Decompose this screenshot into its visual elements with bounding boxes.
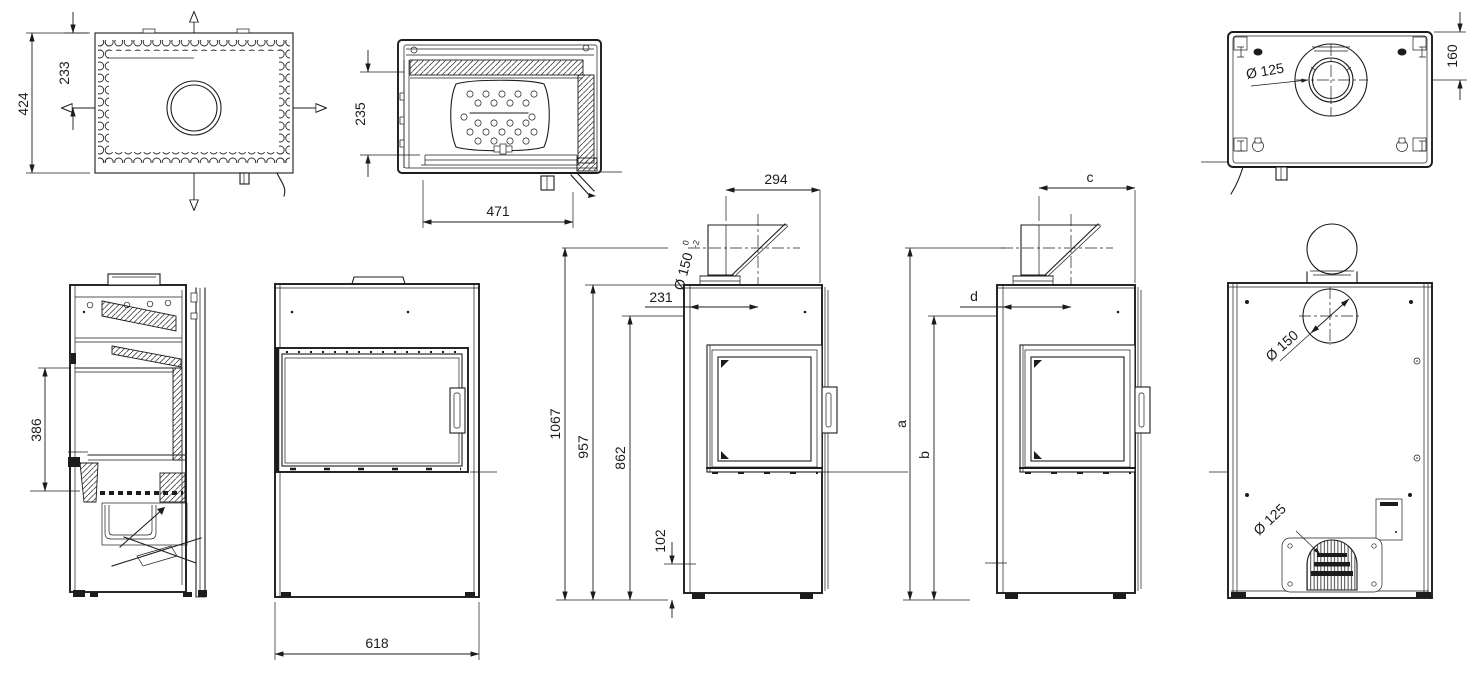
gasket-border-left — [98, 42, 109, 163]
grille-slot-2 — [1314, 562, 1350, 567]
view-side-lettered: c d a b — [893, 169, 1150, 600]
dim-b-label: b — [916, 451, 932, 459]
section-body-outline — [70, 285, 186, 592]
bottom-tab — [1276, 167, 1287, 180]
gasket-border-right — [279, 42, 290, 163]
side-foot-rear — [800, 593, 813, 599]
rear-screw-2 — [1409, 300, 1413, 304]
foot-3 — [183, 592, 192, 597]
door-front — [276, 348, 468, 472]
side-insulation-strip — [578, 75, 594, 163]
flue-pipe-cut-line-b — [1045, 224, 1098, 275]
gasket-border-bottom — [100, 152, 288, 163]
side-foot-front-b — [1005, 593, 1018, 599]
flue-pipe-cut-line — [732, 224, 785, 275]
heat-shield-lines — [196, 288, 205, 597]
dim-flue-offset-label: 233 — [56, 61, 72, 85]
fastener-top-left — [1254, 49, 1263, 56]
technical-drawing-page: 424 233 — [0, 0, 1483, 675]
dim-d-label: d — [970, 288, 978, 304]
door-seal-bottom — [68, 457, 80, 467]
grille-slot-1 — [1317, 553, 1347, 557]
view-side-cross-section: 386 — [28, 274, 207, 597]
top-notch-right — [237, 29, 249, 33]
rating-plate-text-bar — [1380, 502, 1398, 506]
small-dot — [83, 311, 85, 313]
rear-screw-4 — [1408, 493, 1412, 497]
dim-overall-width-label: 618 — [365, 635, 389, 651]
dim-a-label: a — [893, 420, 909, 428]
hinge-corner-block — [577, 158, 597, 171]
side-door-handle-b — [1135, 387, 1150, 433]
view-top-plan: 424 233 — [15, 12, 326, 210]
flue-collar-lines-b — [1013, 276, 1053, 285]
flue-pipe-outline — [708, 225, 787, 275]
flue-dia-tol-lower: -2 — [690, 239, 702, 249]
stove-technical-drawing-canvas: 424 233 — [0, 0, 1483, 675]
keyhole-stem-left — [1255, 138, 1261, 143]
flue-pipe-rear — [1307, 224, 1357, 274]
dim-height-flue-center-label: 1067 — [547, 408, 563, 439]
door-seal-top — [71, 353, 76, 364]
flue-pipe-outline-b — [1021, 225, 1100, 275]
ext-lines-294 — [726, 190, 820, 283]
dim-height-rear-outlet-label: 862 — [612, 446, 628, 470]
view-firebox-horizontal-section: 235 471 — [352, 40, 622, 228]
wall-nub-2 — [400, 117, 404, 124]
fastener-top-right — [1398, 49, 1407, 56]
rear-screw-3 — [1245, 493, 1249, 497]
rear-keyhole-2-dot — [1416, 457, 1418, 459]
dim-firebox-width-label: 471 — [486, 203, 510, 219]
front-foot-right — [465, 592, 475, 597]
view-side-dimensioned: 294 Ø 150 0 -2 231 1067 957 862 102 — [547, 171, 908, 618]
wall-nub-3 — [400, 140, 404, 147]
foot-1 — [73, 590, 85, 597]
gasket-border-top — [100, 40, 288, 51]
dim-c-label: c — [1087, 169, 1094, 185]
ext-lines-618 — [275, 602, 479, 660]
screw-dot-right — [407, 311, 410, 314]
rear-foot-right — [1416, 592, 1431, 598]
side-screw-dot — [804, 311, 807, 314]
bottom-clip — [240, 173, 249, 184]
rear-foot-left — [1231, 592, 1246, 598]
dim-flue-front-offset-label: 231 — [649, 289, 673, 305]
view-bottom-plan: Ø 125 160 — [1201, 12, 1467, 194]
latch-bracket — [541, 176, 554, 190]
view-front: 618 — [275, 277, 497, 660]
door-handle-front — [450, 388, 465, 433]
door-swing-lines — [571, 174, 594, 196]
rear-insulation-block — [160, 473, 185, 502]
wall-nub-1 — [400, 93, 404, 100]
dim-overall-depth-label: 424 — [15, 92, 31, 116]
grille-slot-3 — [1311, 571, 1353, 576]
rear-keyhole-1-dot — [1416, 360, 1418, 362]
rear-insulation-strip — [173, 368, 182, 460]
shield-hook-2 — [191, 313, 197, 319]
side-screw-dot-b — [1117, 311, 1120, 314]
dim-rear-offset-label: 160 — [1444, 44, 1460, 68]
dim-firebox-depth-label: 235 — [352, 102, 368, 126]
foot-4 — [198, 590, 207, 597]
baffle-hatched-band — [410, 60, 583, 75]
sensor-cable — [277, 173, 285, 196]
screw-dot-left — [291, 311, 294, 314]
rear-screw-1 — [1245, 300, 1249, 304]
foot-2 — [90, 592, 98, 597]
view-rear: Ø 150 Ø 125 — [1209, 224, 1432, 598]
dim-opening-height-label: 386 — [28, 418, 44, 442]
top-notch-left — [143, 29, 155, 33]
flue-collar-front — [352, 277, 405, 284]
front-foot-left — [281, 592, 291, 597]
keyhole-stem-right — [1399, 138, 1405, 143]
dim-inlet-height-label: 102 — [652, 529, 668, 553]
side-foot-front — [692, 593, 705, 599]
heat-shield-panel — [196, 288, 205, 597]
shield-hook-1 — [191, 293, 197, 302]
dim-height-overall-label: 957 — [575, 435, 591, 459]
side-foot-rear-b — [1113, 593, 1126, 599]
dim-flue-depth-label: 294 — [764, 171, 788, 187]
door-swing-arrow — [588, 193, 596, 198]
panel-latch-tab — [500, 144, 506, 154]
ext-lines-424 — [26, 33, 90, 173]
top-collar — [108, 274, 160, 285]
cable-bottom — [1231, 167, 1243, 194]
flue-opening-outer — [167, 81, 221, 135]
side-door-handle — [822, 387, 837, 433]
ext-lines-c — [1039, 190, 1135, 283]
rating-plate-dot — [1395, 531, 1397, 533]
flue-collar-lines — [700, 276, 740, 285]
flue-dia-callout: Ø 150 0 -2 — [669, 236, 702, 292]
